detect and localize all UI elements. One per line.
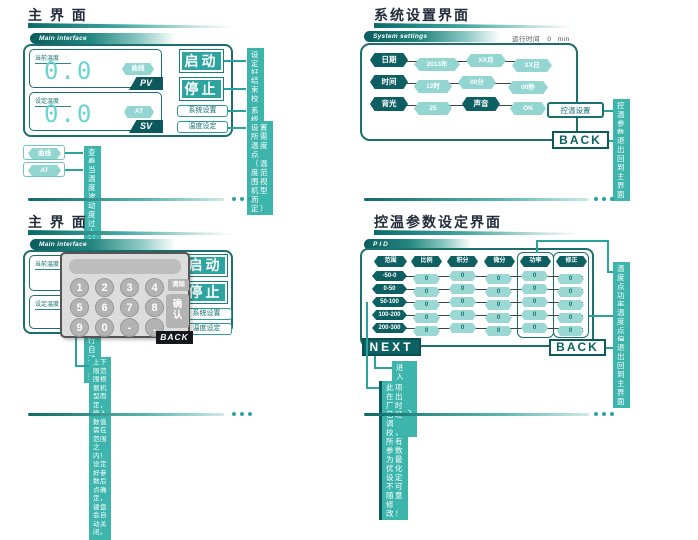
backlight-value[interactable]: 25: [414, 102, 452, 115]
annotation-back: 退出回到主界面: [613, 341, 630, 408]
key-2[interactable]: 2: [95, 278, 114, 297]
pid-cell[interactable]: 0: [413, 326, 440, 336]
pid-cell[interactable]: 0: [521, 310, 548, 320]
sv-tag: SV: [129, 120, 163, 133]
pid-cell[interactable]: 0: [485, 274, 512, 284]
pid-header-i: 积分: [447, 256, 478, 267]
temp-ctrl-settings-button[interactable]: 控温设置: [547, 102, 604, 118]
pid-range: 200-300: [372, 323, 407, 333]
legend-curve-button: 曲线: [28, 148, 61, 159]
sound-value[interactable]: ON: [510, 102, 546, 115]
key-4[interactable]: 4: [145, 278, 164, 297]
connector: [589, 315, 613, 317]
runtime-text: 运行时间 0 min: [512, 33, 570, 43]
pid-cell[interactable]: 0: [521, 297, 548, 307]
pid-range: -50-0: [372, 271, 407, 281]
page-title: 主 界 面: [28, 212, 88, 232]
key-0[interactable]: 0: [95, 318, 114, 337]
pv-tag: PV: [129, 77, 163, 90]
pid-cell[interactable]: 0: [485, 287, 512, 297]
pid-header-fix: 修正: [556, 256, 587, 267]
separator-dots: [594, 412, 614, 416]
pid-cell[interactable]: 0: [485, 313, 512, 323]
pid-note: 此项在出厂时已经调校，所有参数为最优化设定不可随意修改！: [379, 381, 408, 520]
annotation-back: 退出回到主界面: [613, 134, 630, 201]
current-temp-display: 当前温度 0.0 曲线 PV: [29, 49, 162, 88]
key-minus[interactable]: -: [120, 318, 139, 337]
set-temp-value: 0.0: [44, 100, 93, 128]
pid-cell[interactable]: 0: [557, 313, 584, 323]
title-underline: [28, 230, 233, 235]
numeric-keypad: 1 2 3 4 5 6 7 8 9 0 - . 清除 确 认 BACK: [60, 252, 190, 338]
confirm-button[interactable]: 确 认: [166, 294, 189, 328]
key-6[interactable]: 6: [95, 298, 114, 317]
key-9[interactable]: 9: [70, 318, 89, 337]
key-1[interactable]: 1: [70, 278, 89, 297]
date-year-value[interactable]: 2013年: [414, 58, 460, 71]
screen-banner: System settings: [364, 31, 506, 42]
connector: [75, 365, 89, 367]
keypad-back-button[interactable]: BACK: [156, 331, 193, 344]
pid-cell[interactable]: 0: [521, 284, 548, 294]
pid-range: 50-100: [372, 297, 407, 307]
connector: [65, 169, 83, 171]
separator-dots: [232, 412, 252, 416]
screen-banner: Main interface: [30, 239, 182, 250]
time-min-value[interactable]: 00分: [458, 76, 496, 89]
clear-button[interactable]: 清除: [168, 279, 189, 291]
date-label: 日期: [370, 53, 408, 67]
date-month-value[interactable]: XX月: [466, 54, 506, 67]
pid-cell[interactable]: 0: [557, 274, 584, 284]
title-underline: [374, 23, 574, 28]
pid-cell[interactable]: 0: [557, 326, 584, 336]
time-sec-value[interactable]: 00秒: [508, 81, 548, 94]
system-settings-button[interactable]: 系统设置: [177, 105, 228, 117]
connector: [604, 110, 613, 112]
section-separator: [364, 198, 589, 201]
key-5[interactable]: 5: [70, 298, 89, 317]
page-title: 系统设置界面: [374, 5, 470, 25]
page-title: 主 界 面: [28, 5, 88, 25]
pid-cell[interactable]: 0: [449, 297, 476, 307]
stop-button[interactable]: 停止: [179, 77, 224, 101]
pid-cell[interactable]: 0: [413, 300, 440, 310]
at-button[interactable]: AT: [124, 106, 154, 118]
pid-cell[interactable]: 0: [413, 274, 440, 284]
temp-setting-button[interactable]: 温度设定: [177, 121, 228, 133]
pid-cell[interactable]: 0: [521, 271, 548, 281]
pid-header-d: 微分: [484, 256, 515, 267]
runtime-value: 0: [547, 36, 551, 43]
pid-cell[interactable]: 0: [449, 271, 476, 281]
section-separator: [28, 198, 224, 201]
runtime-label: 运行时间: [512, 36, 540, 43]
legend-at-box: AT: [23, 162, 65, 177]
legend-at-button: AT: [28, 165, 61, 176]
current-temp-value: 0.0: [44, 57, 93, 85]
start-button[interactable]: 启动: [179, 49, 224, 73]
key-7[interactable]: 7: [120, 298, 139, 317]
pid-range: 0-50: [372, 284, 407, 294]
curve-button[interactable]: 曲线: [122, 63, 154, 75]
backlight-label: 背光: [370, 97, 408, 111]
pid-header-p: 比例: [411, 256, 442, 267]
runtime-unit: min: [558, 36, 570, 43]
section-separator: [364, 413, 589, 416]
key-8[interactable]: 8: [145, 298, 164, 317]
connector: [228, 127, 246, 129]
key-3[interactable]: 3: [120, 278, 139, 297]
pid-header-power: 功率: [520, 256, 551, 267]
set-temp-display: 设定温度 0.0 AT SV: [29, 92, 162, 131]
connector: [536, 240, 538, 253]
connector: [536, 240, 608, 242]
pid-header-range: 范围: [374, 256, 407, 267]
time-label: 时间: [370, 75, 408, 89]
connector: [75, 338, 77, 366]
pid-cell[interactable]: 0: [521, 323, 548, 333]
separator-dots: [594, 197, 614, 201]
title-underline: [28, 23, 233, 28]
pid-range: 100-200: [372, 310, 407, 320]
connector: [366, 387, 379, 389]
date-day-value[interactable]: XX日: [512, 59, 552, 72]
connector: [366, 302, 368, 388]
back-button[interactable]: BACK: [552, 131, 609, 149]
pid-cell[interactable]: 0: [449, 284, 476, 294]
back-button[interactable]: BACK: [549, 339, 606, 356]
pid-cell[interactable]: 0: [557, 287, 584, 297]
time-hour-value[interactable]: 12时: [414, 80, 452, 93]
connector: [228, 110, 246, 112]
pid-cell[interactable]: 0: [449, 323, 476, 333]
pid-cell[interactable]: 0: [557, 300, 584, 310]
separator-dots: [232, 197, 252, 201]
pid-cell[interactable]: 0: [413, 287, 440, 297]
pid-cell[interactable]: 0: [449, 310, 476, 320]
connector: [65, 152, 83, 154]
section-separator: [28, 413, 224, 416]
connector: [224, 60, 246, 62]
connector: [606, 347, 613, 349]
connector: [374, 367, 392, 369]
legend-curve-box: 曲线: [23, 145, 65, 160]
connector: [607, 240, 609, 272]
screen-banner: Main interface: [30, 33, 182, 44]
sound-label: 声音: [462, 97, 500, 111]
connector: [224, 88, 246, 90]
pid-cell[interactable]: 0: [485, 300, 512, 310]
page-title: 控温参数设定界面: [374, 212, 502, 232]
pid-cell[interactable]: 0: [485, 326, 512, 336]
next-button[interactable]: NEXT: [362, 338, 421, 356]
pid-cell[interactable]: 0: [413, 313, 440, 323]
keypad-note: 上下限范围根据机型而定，输入数值需在范围之内！ 设定好参数后点确定，键盘会自动关…: [89, 357, 111, 540]
keypad-display: [69, 259, 181, 274]
